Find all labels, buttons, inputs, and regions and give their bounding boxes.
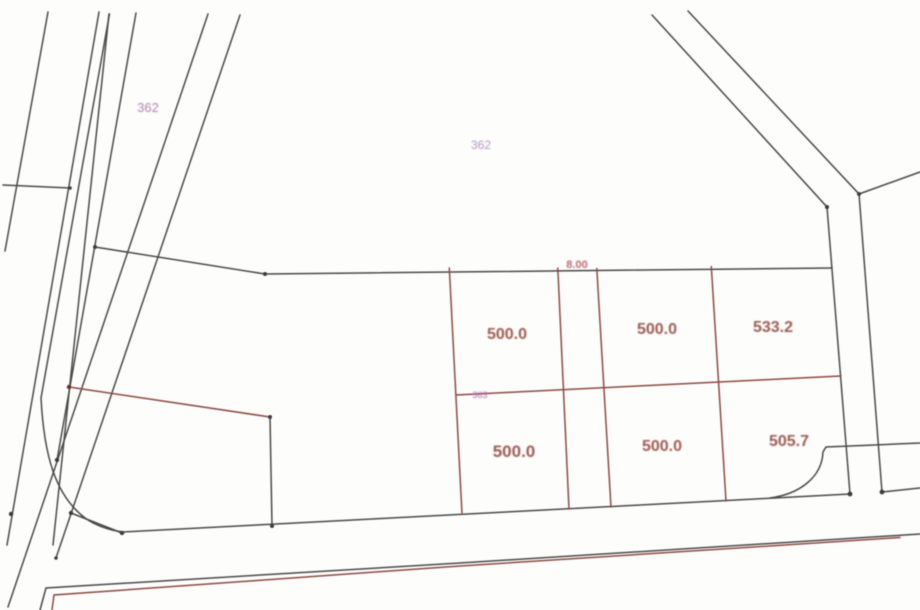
svg-text:533.2: 533.2 [753,319,793,336]
svg-text:362: 362 [137,100,159,115]
svg-text:8.00: 8.00 [566,259,587,271]
svg-text:500.0: 500.0 [487,326,527,343]
svg-text:505.7: 505.7 [769,433,809,450]
svg-text:500.0: 500.0 [637,321,677,338]
svg-text:500.0: 500.0 [493,442,536,461]
svg-text:500.0: 500.0 [642,438,682,455]
svg-text:362: 362 [471,138,491,152]
svg-text:363: 363 [472,390,487,400]
